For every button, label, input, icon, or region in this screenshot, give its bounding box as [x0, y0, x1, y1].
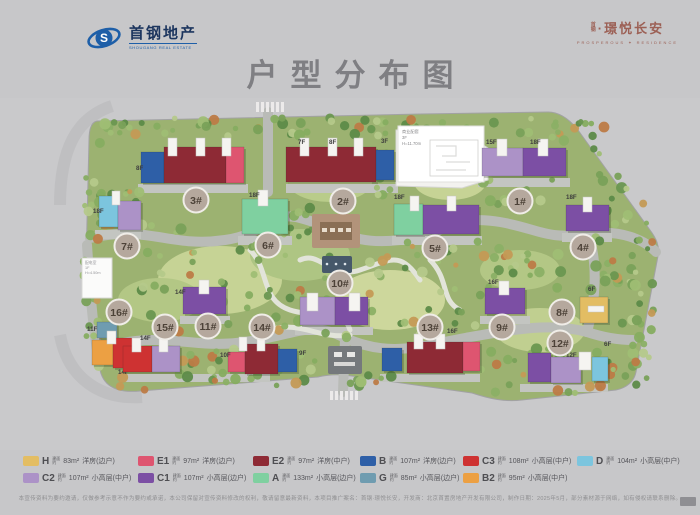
tree: [134, 187, 144, 197]
tree: [108, 130, 114, 136]
legend-area-prefix: 建面约: [172, 457, 180, 465]
tree: [375, 191, 382, 198]
unit-block-B: [382, 348, 402, 371]
crosswalk-stripe: [271, 102, 274, 112]
tree: [306, 365, 316, 375]
tree: [127, 189, 132, 194]
building-label-16#: 16#: [107, 300, 132, 325]
tree: [492, 360, 502, 370]
tree: [555, 129, 561, 135]
svg-text:12#: 12#: [551, 338, 569, 350]
building-label-1#: 1#: [508, 189, 533, 214]
tree: [366, 290, 374, 298]
svg-text:8F: 8F: [136, 165, 143, 172]
tree: [401, 319, 409, 327]
tree: [648, 309, 656, 317]
building-label-9#: 9#: [490, 315, 515, 340]
tree: [404, 239, 411, 246]
unit-block-C2: [118, 201, 141, 230]
tree: [218, 369, 226, 377]
elevator-core: [199, 280, 209, 294]
legend-area: 95m²: [509, 475, 525, 482]
crosswalk-stripe: [256, 102, 259, 112]
commercial-callout: [398, 126, 484, 182]
building-10#: [300, 293, 370, 327]
tree: [367, 125, 375, 133]
legend-unit-type: 小高层(中户): [640, 456, 680, 466]
tree: [644, 375, 650, 381]
legend-swatch-C1: [138, 473, 154, 483]
legend-unit-type: 洋房(中户): [317, 456, 350, 466]
svg-text:18F: 18F: [566, 194, 577, 201]
tree: [549, 134, 556, 141]
tree: [610, 271, 619, 280]
tree: [139, 283, 148, 292]
tree: [86, 189, 93, 196]
svg-text:18F: 18F: [394, 194, 405, 201]
legend-swatch-E2: [253, 456, 269, 466]
svg-text:8#: 8#: [556, 307, 568, 319]
tree: [437, 288, 444, 295]
svg-text:18F: 18F: [530, 139, 541, 146]
tree: [555, 266, 566, 277]
tree: [516, 128, 525, 137]
svg-text:5#: 5#: [429, 243, 441, 255]
legend-unit-type: 小高层(边户): [316, 473, 356, 483]
tree: [527, 272, 532, 277]
tree: [453, 262, 458, 267]
tree: [609, 257, 616, 264]
tree: [233, 126, 238, 131]
tree: [439, 119, 446, 126]
tree: [638, 291, 644, 297]
tree: [629, 342, 636, 349]
tree: [632, 380, 640, 388]
tree: [378, 256, 388, 266]
legend-area-prefix: 建面约: [52, 457, 60, 465]
svg-text:9F: 9F: [299, 350, 306, 357]
building-label-13#: 13#: [418, 315, 443, 340]
building-label-3#: 3#: [184, 188, 209, 213]
elevator-core: [196, 138, 205, 156]
tree: [406, 115, 416, 125]
legend-code: G: [379, 473, 387, 484]
legend-area-prefix: 建面约: [606, 457, 614, 465]
tree: [479, 251, 489, 261]
building-label-6#: 6#: [256, 233, 281, 258]
tree: [641, 341, 648, 348]
tree: [286, 294, 295, 303]
elevator-core: [410, 196, 419, 211]
shougang-logo-icon: S: [86, 24, 122, 52]
tree: [83, 175, 89, 181]
svg-text:11#: 11#: [200, 321, 217, 333]
legend-swatch-A: [253, 473, 269, 483]
svg-text:14F: 14F: [175, 289, 186, 296]
legend-swatch-B2: [463, 473, 479, 483]
svg-text:18F: 18F: [93, 208, 104, 215]
tree: [126, 124, 132, 130]
tree: [503, 250, 513, 260]
tree: [111, 119, 118, 126]
tree: [611, 367, 616, 372]
svg-text:H=4.50m: H=4.50m: [85, 271, 101, 275]
svg-text:18F: 18F: [249, 192, 260, 199]
crosswalk-stripe: [266, 102, 269, 112]
elevator-core: [354, 138, 363, 156]
svg-text:9#: 9#: [496, 322, 508, 334]
tree: [95, 138, 105, 148]
tree: [296, 234, 302, 240]
legend-code: B: [379, 456, 386, 467]
svg-text:4#: 4#: [577, 242, 589, 254]
tree: [609, 196, 615, 202]
tree: [139, 120, 145, 126]
crosswalk-stripe: [355, 391, 358, 400]
tree: [365, 257, 375, 267]
legend-area: 107m²: [184, 475, 204, 482]
legend-area-prefix: 建面约: [58, 474, 66, 482]
crosswalk-stripe: [281, 102, 284, 112]
tree: [143, 248, 152, 257]
elevator-core: [579, 352, 591, 370]
building-label-11#: 11#: [196, 314, 221, 339]
tree: [536, 195, 546, 205]
tree: [471, 321, 480, 330]
building-label-12#: 12#: [548, 331, 573, 356]
tree: [644, 221, 649, 226]
crosswalk-stripe: [350, 391, 353, 400]
svg-text:3F: 3F: [402, 135, 407, 140]
legend-unit-type: 洋房(边户): [202, 456, 235, 466]
brand-right: 首 钢 ·璟悦长安 PROSPEROUS ✦ RESIDENCE: [577, 18, 678, 45]
tree: [207, 366, 216, 375]
tree: [559, 135, 570, 146]
unit-block-B: [376, 150, 394, 180]
unit-block-B: [141, 152, 164, 183]
tree: [230, 374, 241, 385]
tree: [387, 186, 394, 193]
legend-item-G: G建面约85m²小高层(边户): [360, 472, 459, 484]
crosswalk-stripe: [330, 391, 333, 400]
legend-code: C2: [42, 473, 55, 484]
unit-block-C1: [528, 353, 551, 382]
svg-text:7F: 7F: [298, 139, 305, 146]
tree: [191, 250, 197, 256]
tree: [379, 376, 384, 381]
legend-code: A: [272, 473, 279, 484]
page: S 首钢地产 SHOUGANG REAL ESTATE 首 钢 ·璟悦长安 PR…: [0, 0, 700, 515]
svg-text:8F: 8F: [329, 139, 336, 146]
legend-unit-type: 洋房(边户): [82, 456, 115, 466]
brand-left: S 首钢地产 SHOUGANG REAL ESTATE: [86, 24, 197, 52]
unit-block-D: [592, 357, 608, 381]
elevator-core: [497, 139, 507, 156]
unit-block-C2: [551, 357, 581, 383]
tree: [520, 372, 526, 378]
crosswalk-stripe: [345, 391, 348, 400]
tree: [90, 178, 99, 187]
tree: [592, 348, 602, 358]
tree: [630, 280, 641, 291]
tree: [296, 118, 306, 128]
tree: [224, 320, 232, 328]
legend-area-prefix: 建面约: [173, 474, 181, 482]
tree: [648, 238, 656, 246]
svg-text:7#: 7#: [121, 241, 133, 253]
building-label-14#: 14#: [250, 315, 275, 340]
crosswalk-stripe: [261, 102, 264, 112]
legend-unit-type: 小高层(中户): [92, 473, 132, 483]
legend-area: 108m²: [509, 458, 529, 465]
tree: [90, 332, 97, 339]
legend-item-C1: C1建面约107m²小高层(边户): [138, 472, 246, 484]
tree: [223, 379, 230, 386]
svg-text:6F: 6F: [588, 286, 595, 293]
tree: [506, 381, 513, 388]
svg-text:10F: 10F: [220, 352, 231, 359]
unit-legend: H建面约83m²洋房(边户)E1建面约97m²洋房(边户)E2建面约97m²洋房…: [0, 452, 700, 488]
elevator-core: [239, 337, 247, 351]
legend-item-H: H建面约83m²洋房(边户): [23, 455, 115, 467]
building-label-10#: 10#: [328, 271, 353, 296]
site-plan: 3F商业配套3FH=11.70m配电室1FH=4.50m8F7F8F15F18F…: [0, 98, 700, 450]
tree: [622, 372, 630, 380]
tree: [175, 223, 186, 234]
tree: [355, 376, 366, 387]
tree: [410, 244, 415, 249]
tree: [590, 145, 597, 152]
legend-item-C2: C2建面约107m²小高层(中户): [23, 472, 131, 484]
elevator-core: [112, 191, 120, 205]
legend-unit-type: 洋房(边户): [423, 456, 456, 466]
building-label-8#: 8#: [550, 300, 575, 325]
legend-area: 85m²: [401, 475, 417, 482]
legend-code: H: [42, 456, 49, 467]
tree: [130, 129, 140, 139]
tree: [84, 206, 94, 216]
legend-item-B: B建面约107m²洋房(边户): [360, 455, 456, 467]
tree: [618, 319, 627, 328]
tree: [599, 122, 610, 133]
tree: [274, 383, 280, 389]
tree: [264, 292, 272, 300]
brand-left-name-en: SHOUGANG REAL ESTATE: [129, 43, 197, 50]
legend-area-prefix: 建面约: [287, 457, 295, 465]
tree: [632, 315, 642, 325]
page-title: 户型分布图: [0, 50, 700, 95]
legend-swatch-E1: [138, 456, 154, 466]
tree: [512, 358, 517, 363]
legend-area: 104m²: [617, 458, 637, 465]
legend-swatch-D: [577, 456, 593, 466]
tree: [425, 306, 432, 313]
tree: [524, 128, 533, 137]
tree: [648, 279, 657, 288]
tree: [565, 388, 573, 396]
tree: [486, 347, 496, 357]
tree: [598, 176, 608, 186]
unit-block-E1: [463, 342, 480, 371]
legend-swatch-C3: [463, 456, 479, 466]
svg-text:14F: 14F: [140, 335, 151, 342]
svg-text:6#: 6#: [262, 240, 274, 252]
tree: [595, 236, 604, 245]
crosswalk-stripe: [335, 391, 338, 400]
svg-text:1F: 1F: [85, 266, 90, 270]
svg-text:1#: 1#: [514, 196, 526, 208]
brand-right-prefix: 首 钢: [591, 23, 596, 33]
tree: [489, 118, 499, 128]
tree: [281, 323, 288, 330]
tree: [639, 200, 647, 208]
tree: [373, 379, 379, 385]
legend-item-D: D建面约104m²小高层(中户): [577, 455, 680, 467]
tree: [245, 291, 253, 299]
tree: [118, 121, 126, 129]
tree: [503, 355, 512, 364]
legend-swatch-H: [23, 456, 39, 466]
svg-text:3#: 3#: [190, 195, 202, 207]
tree: [146, 310, 156, 320]
svg-text:13#: 13#: [421, 322, 439, 334]
building-label-5#: 5#: [423, 236, 448, 261]
elevator-core: [222, 138, 231, 156]
legend-item-E1: E1建面约97m²洋房(边户): [138, 455, 235, 467]
tree: [623, 210, 633, 220]
south-gate: [328, 346, 362, 374]
svg-text:配电室: 配电室: [85, 260, 97, 265]
tree: [251, 271, 258, 278]
tree: [236, 246, 245, 255]
tree: [633, 269, 638, 274]
tree: [627, 348, 638, 359]
elevator-core: [349, 293, 360, 311]
tree: [382, 119, 388, 125]
legend-area-prefix: 建面约: [282, 474, 290, 482]
tree: [270, 115, 279, 124]
tree: [141, 386, 149, 394]
tree: [290, 377, 301, 388]
tree: [340, 121, 349, 130]
svg-text:16#: 16#: [110, 307, 128, 319]
tree: [172, 116, 177, 121]
tree: [278, 114, 285, 121]
tree: [182, 371, 193, 382]
tree: [253, 124, 263, 134]
tree: [474, 238, 482, 246]
tree: [373, 117, 381, 125]
tree: [636, 237, 643, 244]
svg-text:10#: 10#: [331, 278, 349, 290]
legend-swatch-C2: [23, 473, 39, 483]
tree: [588, 132, 596, 140]
legend-code: B2: [482, 473, 495, 484]
driveway: [520, 384, 608, 392]
tree: [452, 320, 459, 327]
tree: [312, 358, 317, 363]
tree: [382, 130, 388, 136]
tree: [374, 269, 383, 278]
tree: [157, 253, 163, 259]
legend-area: 107m²: [69, 475, 89, 482]
tree: [305, 203, 316, 214]
tree: [509, 269, 518, 278]
tree: [494, 244, 504, 254]
tree: [639, 348, 648, 357]
tree: [553, 249, 564, 260]
tree: [449, 244, 457, 252]
tree: [342, 333, 351, 342]
legend-item-A: A建面约133m²小高层(边户): [253, 472, 356, 484]
logo-letter: S: [100, 31, 108, 45]
tree: [213, 348, 219, 354]
svg-text:14#: 14#: [253, 322, 271, 334]
tree: [244, 305, 251, 312]
tree: [93, 234, 103, 244]
unit-block-B: [278, 349, 297, 372]
building-label-7#: 7#: [115, 234, 140, 259]
legend-item-C3: C3建面约108m²小高层(中户): [463, 455, 571, 467]
tree: [452, 286, 458, 292]
legend-swatch-G: [360, 473, 376, 483]
legend-unit-type: 小高层(边户): [420, 473, 460, 483]
crosswalk-stripe: [276, 102, 279, 112]
tree: [186, 271, 194, 279]
elevator-core: [588, 306, 604, 312]
tree: [186, 351, 194, 359]
tree: [585, 381, 595, 391]
legend-code: E1: [157, 456, 169, 467]
svg-text:16F: 16F: [488, 279, 499, 286]
elevator-core: [499, 281, 509, 295]
tree: [458, 309, 465, 316]
tree: [476, 291, 485, 300]
tree: [645, 246, 650, 251]
tree: [572, 390, 578, 396]
tree: [202, 122, 211, 131]
tree: [623, 186, 629, 192]
elevator-core: [107, 331, 116, 344]
elevator-core: [168, 138, 177, 156]
tree: [189, 259, 195, 265]
tree: [629, 252, 636, 259]
watermark: [680, 497, 696, 506]
elevator-core: [447, 196, 456, 211]
tree: [491, 387, 500, 396]
tree: [347, 380, 355, 388]
tree: [321, 329, 330, 338]
legend-area: 107m²: [400, 458, 420, 465]
tree: [414, 252, 421, 259]
tree: [360, 116, 369, 125]
tree: [153, 123, 160, 130]
brand-right-name: ·璟悦长安: [598, 18, 664, 37]
tree: [520, 253, 525, 258]
tree: [148, 222, 155, 229]
svg-text:3F: 3F: [381, 139, 388, 145]
elevator-core: [583, 197, 592, 212]
legend-swatch-B: [360, 456, 376, 466]
tree: [255, 256, 263, 264]
tree: [524, 258, 530, 264]
tree: [117, 130, 122, 135]
tree: [116, 382, 124, 390]
legend-unit-type: 小高层(中户): [532, 456, 572, 466]
legend-area: 133m²: [293, 475, 313, 482]
legend-code: C3: [482, 456, 495, 467]
legend-code: E2: [272, 456, 284, 467]
